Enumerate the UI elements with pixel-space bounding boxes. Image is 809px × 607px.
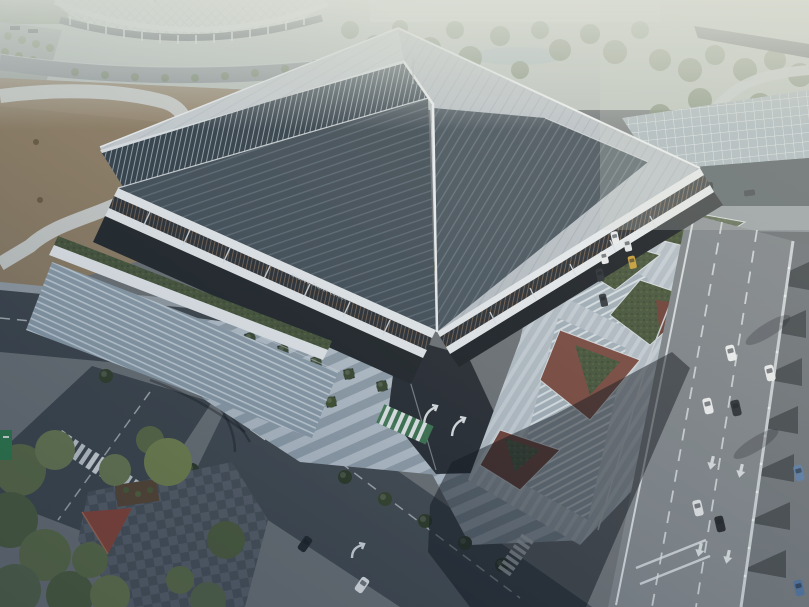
warm-light-overlay	[0, 0, 809, 607]
photo-canvas: 顺德旅游中心 Shunde Travel Center	[0, 0, 809, 607]
aerial-photo: 顺德旅游中心 Shunde Travel Center	[0, 0, 809, 607]
